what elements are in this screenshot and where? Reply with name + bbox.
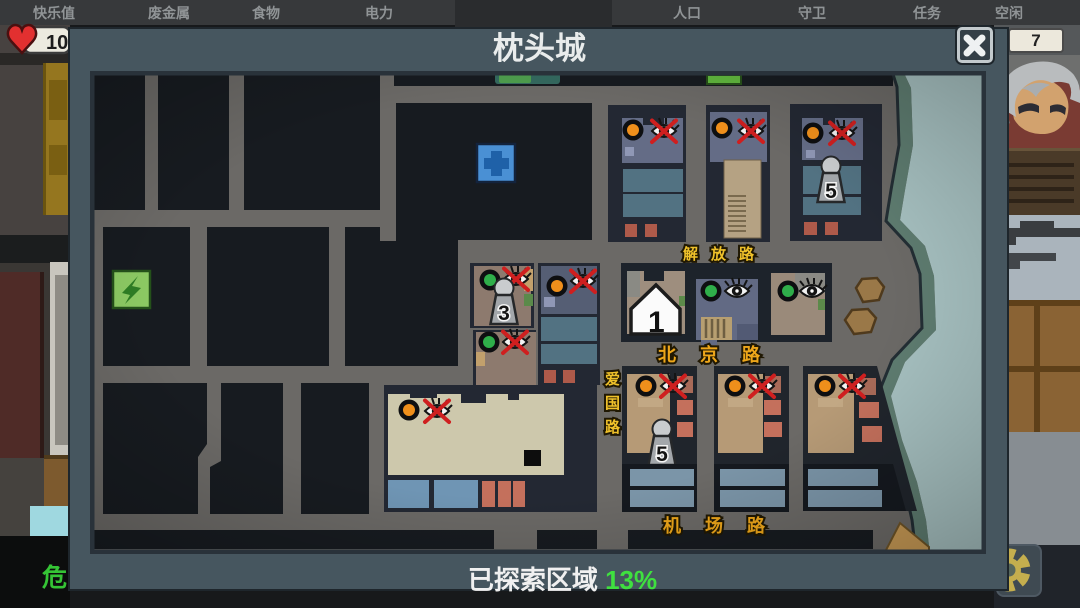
svg-text:10: 10 xyxy=(46,32,68,54)
